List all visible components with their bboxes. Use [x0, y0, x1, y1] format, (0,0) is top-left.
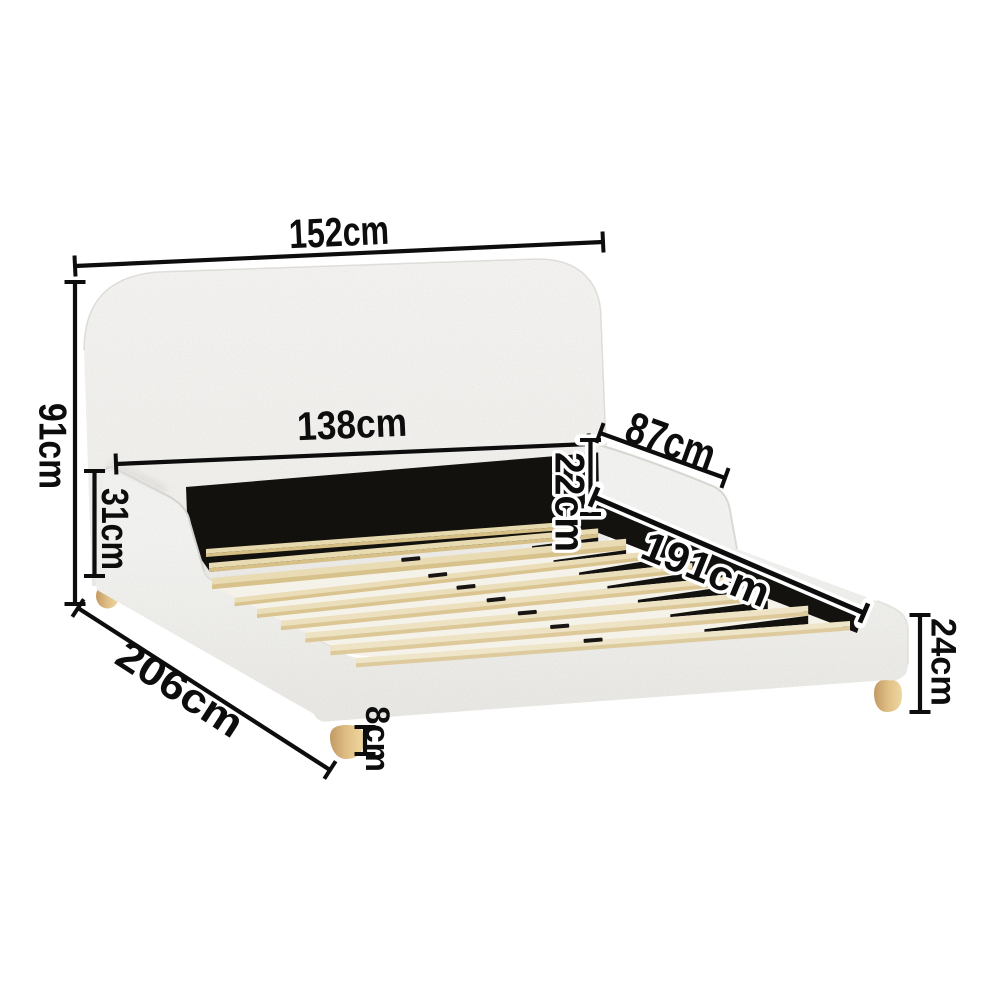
svg-text:152cm: 152cm [288, 207, 390, 257]
svg-text:8cm: 8cm [358, 706, 396, 772]
svg-text:91cm: 91cm [31, 403, 74, 489]
svg-text:24cm: 24cm [924, 618, 963, 706]
svg-text:31cm: 31cm [93, 488, 135, 570]
svg-text:138cm: 138cm [296, 401, 408, 450]
